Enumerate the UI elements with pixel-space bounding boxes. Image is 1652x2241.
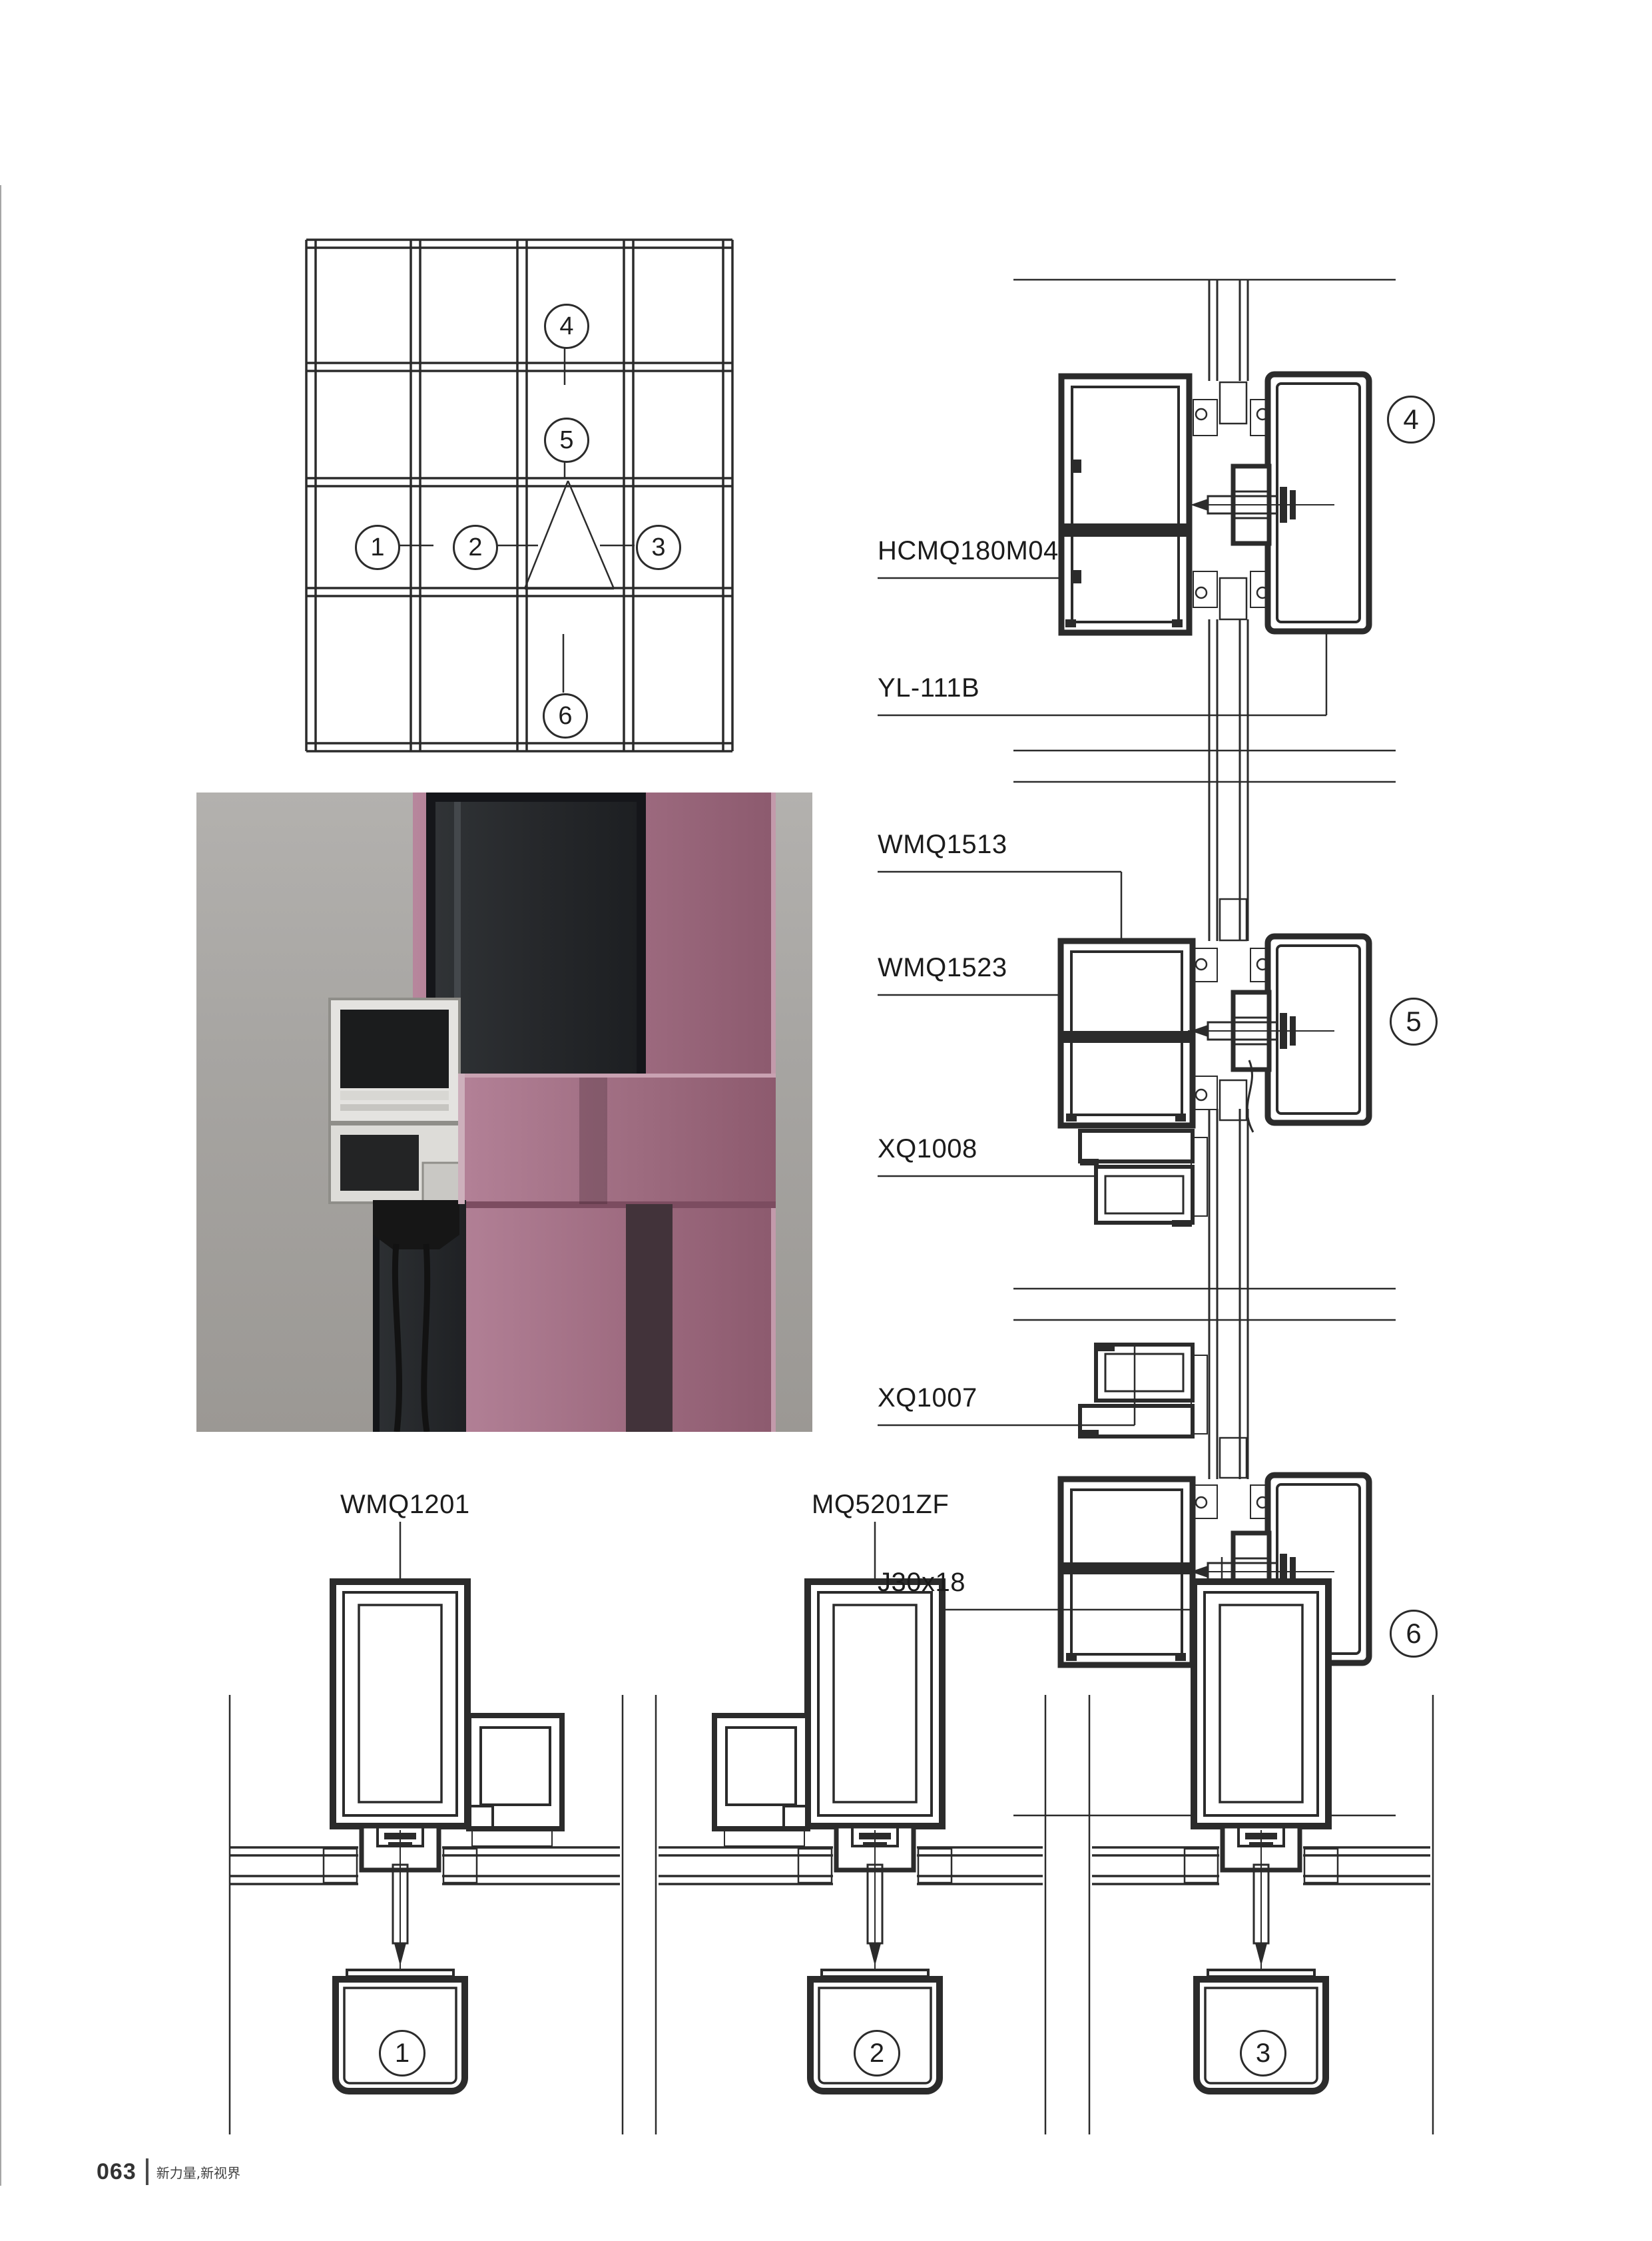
section-callout-3: 3 xyxy=(1240,2030,1286,2077)
section-detail-2 xyxy=(659,1582,1043,2091)
label-hcmq180m04: HCMQ180M04 xyxy=(878,537,1059,565)
footer-slogan: 新力量,新视界 xyxy=(156,2162,240,2182)
label-wmq1523: WMQ1523 xyxy=(878,954,1007,982)
label-yl111b: YL-111B xyxy=(878,674,979,702)
section-detail-5 xyxy=(878,872,1369,1227)
label-mq5201zf: MQ5201ZF xyxy=(812,1490,949,1518)
label-xq1008: XQ1008 xyxy=(878,1135,977,1163)
section-callout-5: 5 xyxy=(1390,998,1438,1046)
label-xq1007: XQ1007 xyxy=(878,1384,977,1412)
elevation-callout-leaders xyxy=(397,345,635,693)
catalog-page: HCMQ180M04 YL-111B WMQ1513 WMQ1523 XQ100… xyxy=(0,0,1652,2241)
elevation-callout-2: 2 xyxy=(453,525,498,570)
label-j30x18: J30x18 xyxy=(878,1568,965,1596)
label-wmq1201: WMQ1201 xyxy=(340,1490,470,1518)
elevation-grid xyxy=(306,240,732,751)
elevation-callout-5: 5 xyxy=(544,418,589,463)
section-callout-4: 4 xyxy=(1387,396,1435,444)
elevation-callout-4: 4 xyxy=(544,304,589,349)
elevation-callout-6: 6 xyxy=(543,693,588,739)
technical-drawing xyxy=(0,0,1652,2241)
footer-divider xyxy=(146,2158,148,2185)
page-footer: 063 新力量,新视界 xyxy=(97,2156,240,2187)
section-callout-2: 2 xyxy=(854,2030,900,2077)
vent-triangle-symbol xyxy=(525,481,614,589)
label-wmq1513: WMQ1513 xyxy=(878,830,1007,858)
elevation-callout-1: 1 xyxy=(355,525,400,570)
section-detail-1 xyxy=(230,1582,620,2091)
page-number: 063 xyxy=(97,2159,137,2185)
elevation-callout-3: 3 xyxy=(636,525,681,570)
section-callout-6: 6 xyxy=(1390,1610,1438,1658)
section-callout-1: 1 xyxy=(379,2030,425,2077)
